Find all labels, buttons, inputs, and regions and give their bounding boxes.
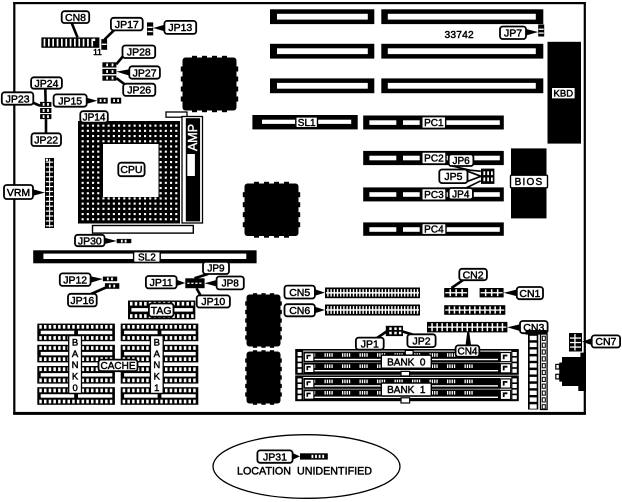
svg-text:CN2: CN2 <box>463 269 484 281</box>
svg-text:SL2: SL2 <box>138 253 156 264</box>
svg-text:N: N <box>72 360 79 371</box>
svg-text:JP14: JP14 <box>83 113 106 124</box>
svg-text:SL1: SL1 <box>298 118 316 129</box>
svg-text:CPU: CPU <box>120 164 142 176</box>
svg-text:JP28: JP28 <box>127 47 151 59</box>
svg-text:B: B <box>154 338 160 349</box>
svg-text:A: A <box>72 349 79 360</box>
svg-text:BIOS: BIOS <box>515 177 544 188</box>
svg-text:JP24: JP24 <box>35 78 59 90</box>
svg-text:JP22: JP22 <box>34 134 58 146</box>
svg-text:JP8: JP8 <box>222 279 240 290</box>
svg-text:JP9: JP9 <box>207 264 225 275</box>
svg-text:11: 11 <box>93 47 102 57</box>
svg-text:JP12: JP12 <box>63 274 87 286</box>
svg-text:JP15: JP15 <box>58 95 82 107</box>
svg-text:JP1: JP1 <box>361 338 379 350</box>
svg-text:JP2: JP2 <box>412 336 430 348</box>
svg-text:JP27: JP27 <box>133 67 157 79</box>
svg-text:K: K <box>72 372 79 383</box>
svg-text:CN8: CN8 <box>65 12 86 24</box>
svg-text:JP7: JP7 <box>504 28 522 40</box>
svg-text:PC4: PC4 <box>424 225 444 236</box>
svg-text:JP16: JP16 <box>70 295 94 307</box>
svg-text:JP30: JP30 <box>78 235 102 247</box>
svg-text:PC3: PC3 <box>424 190 444 201</box>
svg-text:BANK 1: BANK 1 <box>387 385 426 396</box>
svg-text:JP26: JP26 <box>127 85 151 97</box>
svg-text:CN4: CN4 <box>457 347 477 358</box>
svg-text:JP6: JP6 <box>452 156 470 167</box>
svg-text:JP10: JP10 <box>201 296 225 308</box>
svg-text:JP17: JP17 <box>115 19 139 31</box>
svg-text:CACHE: CACHE <box>100 361 135 372</box>
svg-text:CN1: CN1 <box>519 288 540 300</box>
svg-text:KBD: KBD <box>554 89 574 100</box>
svg-text:A: A <box>154 349 161 360</box>
svg-text:1: 1 <box>154 383 159 394</box>
svg-text:BANK 0: BANK 0 <box>387 357 426 368</box>
svg-text:33742: 33742 <box>445 30 474 41</box>
svg-text:LOCATION UNIDENTIFIED: LOCATION UNIDENTIFIED <box>237 466 372 478</box>
svg-text:PC1: PC1 <box>424 118 444 129</box>
svg-text:AMP: AMP <box>186 124 200 151</box>
svg-text:JP13: JP13 <box>168 22 192 34</box>
svg-text:VRM: VRM <box>7 187 30 199</box>
svg-text:CN6: CN6 <box>289 305 310 317</box>
svg-text:TAG: TAG <box>151 305 172 317</box>
svg-text:PC2: PC2 <box>424 154 444 165</box>
svg-text:JP23: JP23 <box>6 93 30 105</box>
svg-text:CN7: CN7 <box>595 336 616 348</box>
svg-text:B: B <box>72 338 78 349</box>
svg-text:JP5: JP5 <box>444 171 462 183</box>
svg-text:JP11: JP11 <box>150 277 173 289</box>
svg-text:K: K <box>154 372 161 383</box>
svg-text:JP4: JP4 <box>452 189 470 200</box>
svg-text:JP31: JP31 <box>263 451 287 463</box>
svg-text:N: N <box>153 360 160 371</box>
svg-text:CN5: CN5 <box>289 287 310 299</box>
svg-text:0: 0 <box>72 383 77 394</box>
